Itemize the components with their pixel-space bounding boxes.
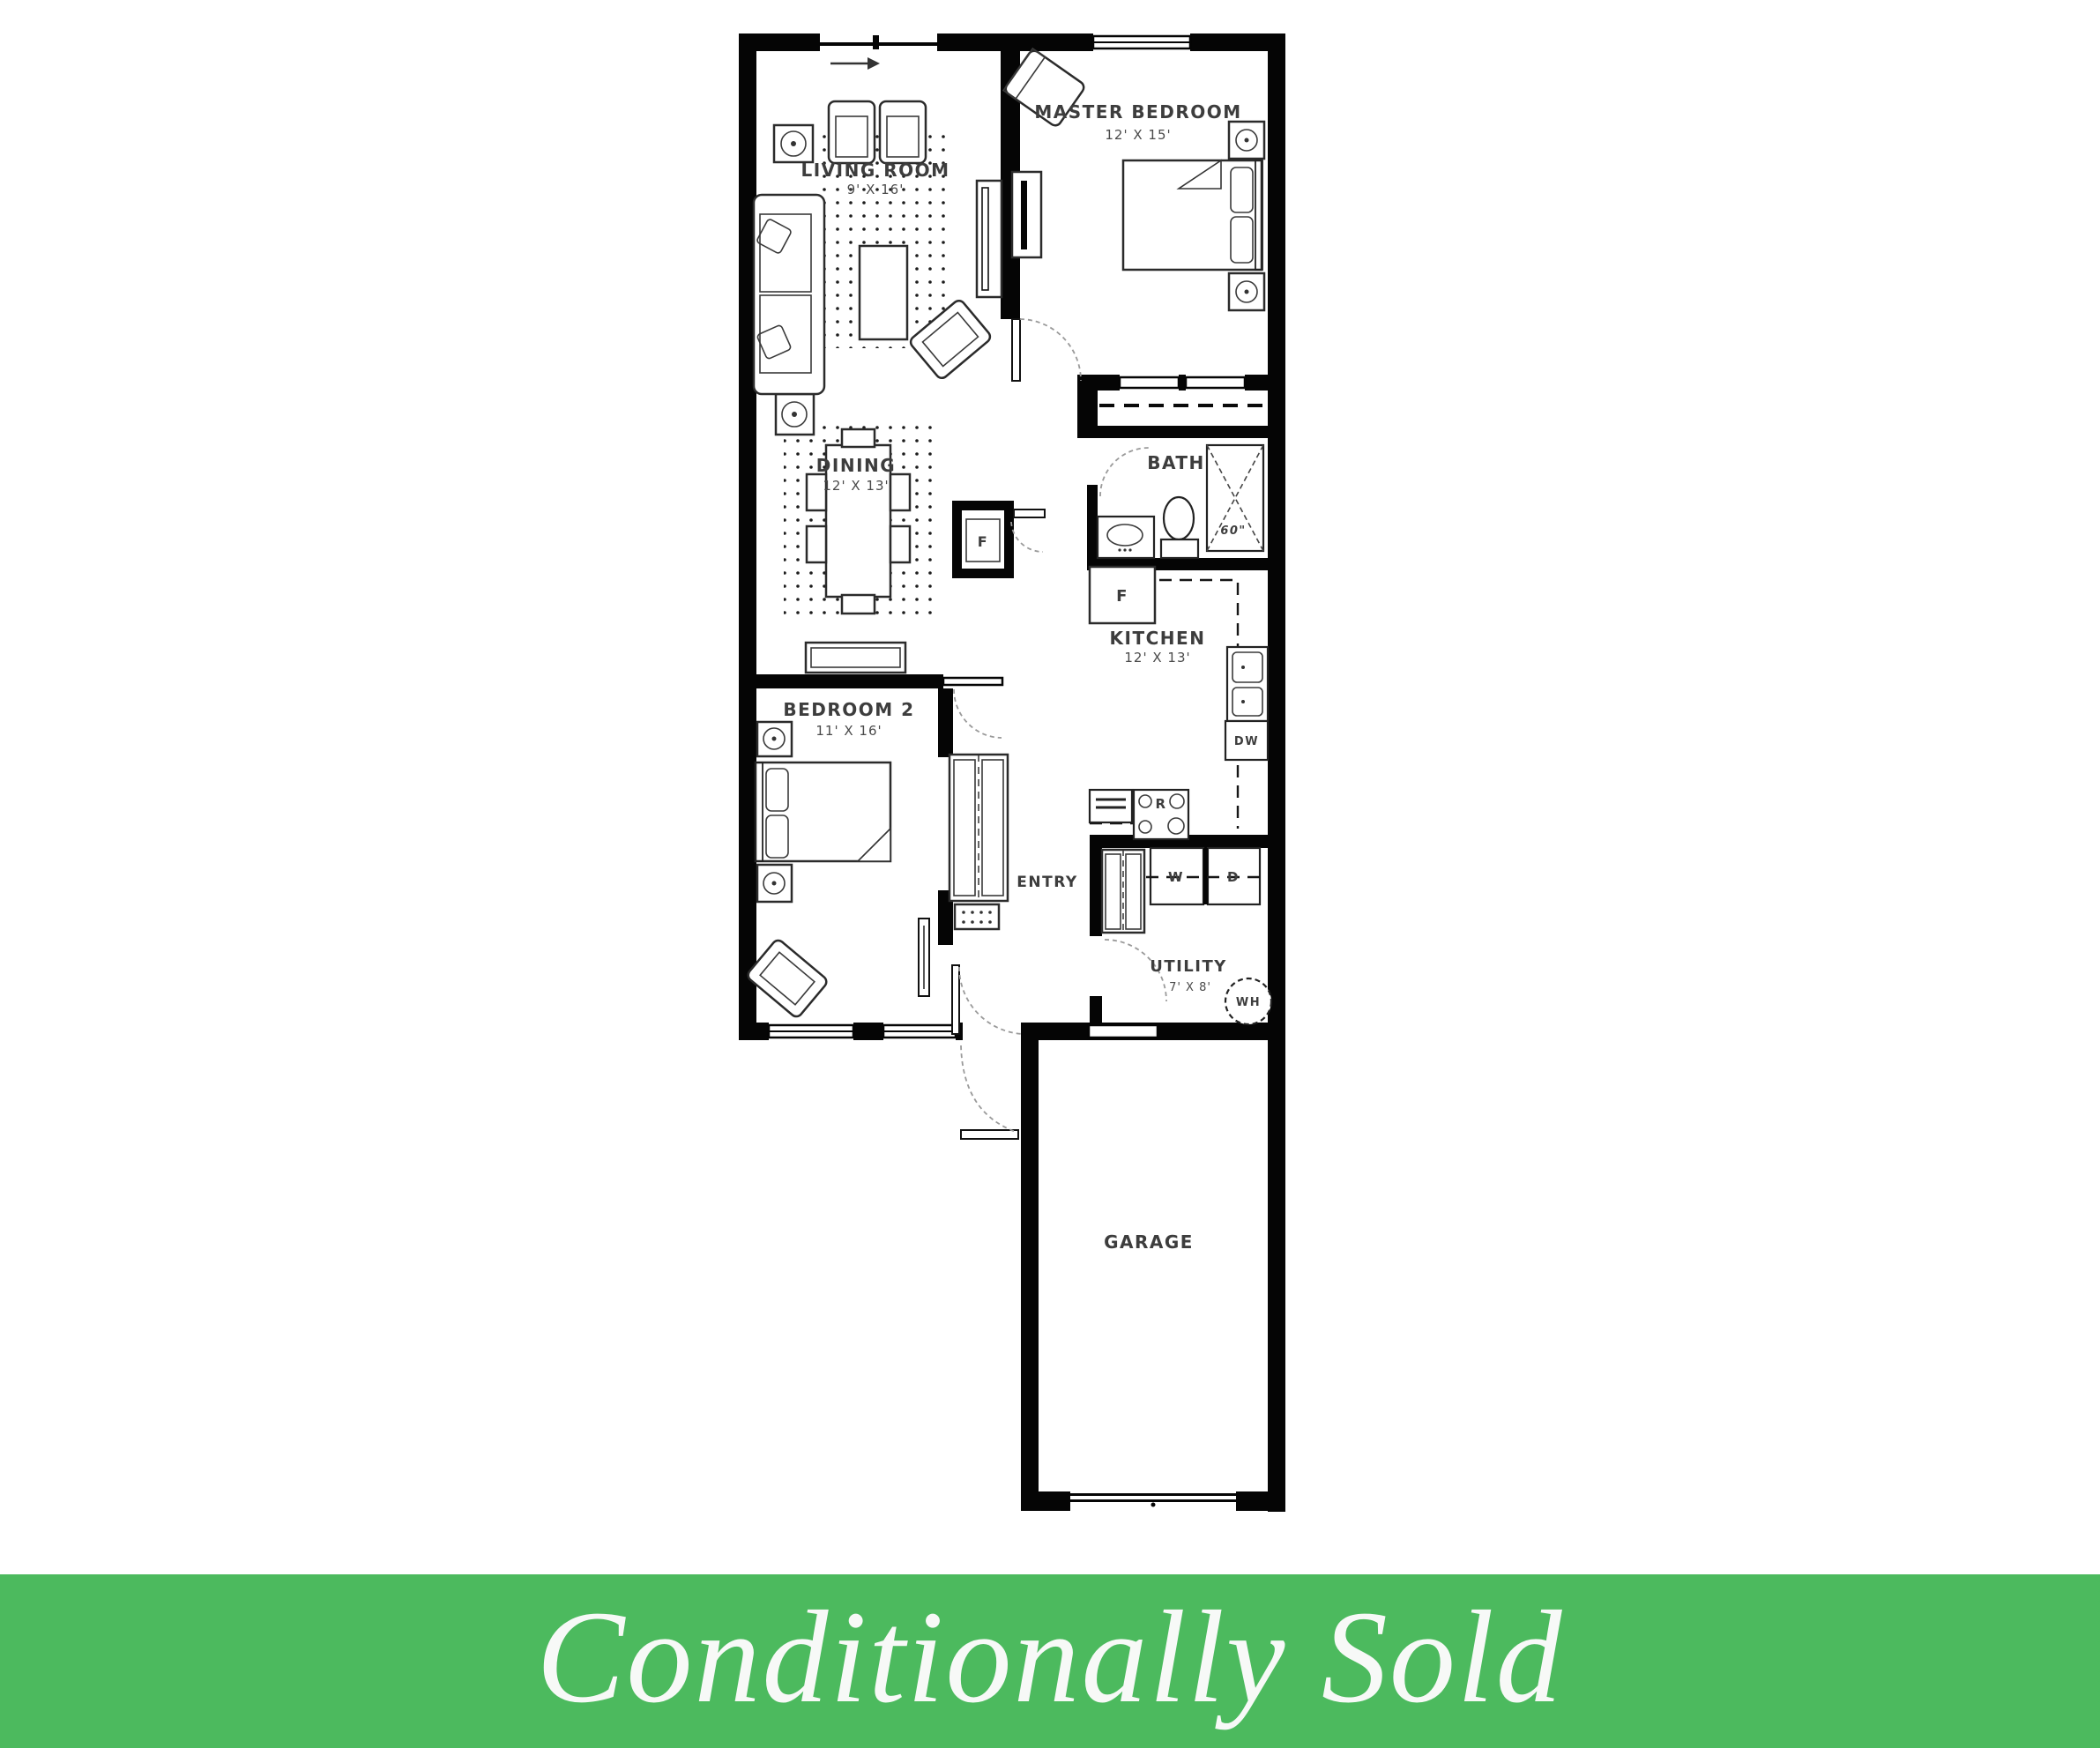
label-living-room-dims: 9' X 16' — [847, 182, 905, 197]
garage-walls — [1021, 1035, 1285, 1511]
bedroom2-bed — [756, 762, 890, 861]
label-utility-dims: 7' X 8' — [1169, 981, 1211, 994]
label-fridge: F — [1116, 587, 1128, 606]
coffee-table — [860, 246, 907, 339]
bath-vanity — [1098, 517, 1154, 558]
label-master-bedroom: MASTER BEDROOM — [1034, 101, 1241, 123]
label-living-room: LIVING ROOM — [801, 160, 949, 181]
label-entry: ENTRY — [1016, 874, 1077, 891]
bath-door — [1100, 448, 1149, 496]
label-garage: GARAGE — [1104, 1231, 1194, 1253]
status-banner-text: Conditionally Sold — [536, 1591, 1563, 1732]
label-dining-dims: 12' X 13' — [823, 478, 889, 494]
bedroom2-nightstand-top — [757, 722, 792, 756]
bedroom2-nightstand-bottom — [757, 865, 792, 902]
status-banner: Conditionally Sold — [0, 1574, 2100, 1748]
bedroom2-chair — [746, 938, 829, 1019]
label-furnace: F — [978, 533, 988, 550]
coat-closet-door — [919, 919, 929, 996]
label-dining: DINING — [816, 455, 896, 476]
label-shower-size: 60" — [1220, 524, 1246, 538]
bedroom2-closet — [949, 755, 1008, 901]
bedroom2-door — [954, 689, 1002, 738]
label-dishwasher: DW — [1234, 735, 1259, 748]
label-bedroom2: BEDROOM 2 — [783, 699, 914, 720]
entry-door-arrow — [830, 57, 880, 70]
front-door — [952, 965, 1024, 1139]
lamp-table-top — [774, 125, 813, 162]
sofa — [754, 195, 824, 394]
floor-plan-drawing: LIVING ROOM 9' X 16' MASTER BEDROOM 12' … — [0, 0, 2100, 1748]
label-master-bedroom-dims: 12' X 15' — [1105, 127, 1171, 143]
tv-niche-living — [977, 181, 1002, 297]
master-nightstand-bottom — [1229, 273, 1264, 310]
lamp-table-bottom — [776, 394, 814, 435]
label-washer: W — [1168, 869, 1184, 885]
kitchen-sink — [1227, 647, 1268, 721]
living-armchair-2 — [880, 101, 926, 163]
label-utility: UTILITY — [1150, 957, 1227, 976]
kitchen-counter-cabinet — [1090, 790, 1132, 822]
label-range: R — [1155, 796, 1166, 812]
toilet — [1161, 497, 1198, 558]
buffet — [806, 643, 905, 673]
furnace-closet — [952, 501, 1045, 578]
label-dryer: D — [1227, 869, 1240, 885]
pantry-closet — [1102, 850, 1144, 933]
master-bedroom-door — [1012, 319, 1081, 381]
entry-dresser — [955, 904, 999, 929]
master-nightstand-top — [1229, 122, 1264, 159]
label-water-heater: WH — [1236, 996, 1261, 1009]
floor-plan-page: LIVING ROOM 9' X 16' MASTER BEDROOM 12' … — [0, 0, 2100, 1748]
living-armchair-1 — [829, 101, 875, 163]
label-bath: BATH — [1147, 452, 1205, 473]
label-kitchen: KITCHEN — [1110, 628, 1206, 649]
label-bedroom2-dims: 11' X 16' — [815, 723, 882, 739]
tv-niche-master — [1012, 172, 1041, 257]
label-kitchen-dims: 12' X 13' — [1124, 650, 1190, 666]
master-bed — [1123, 160, 1262, 270]
